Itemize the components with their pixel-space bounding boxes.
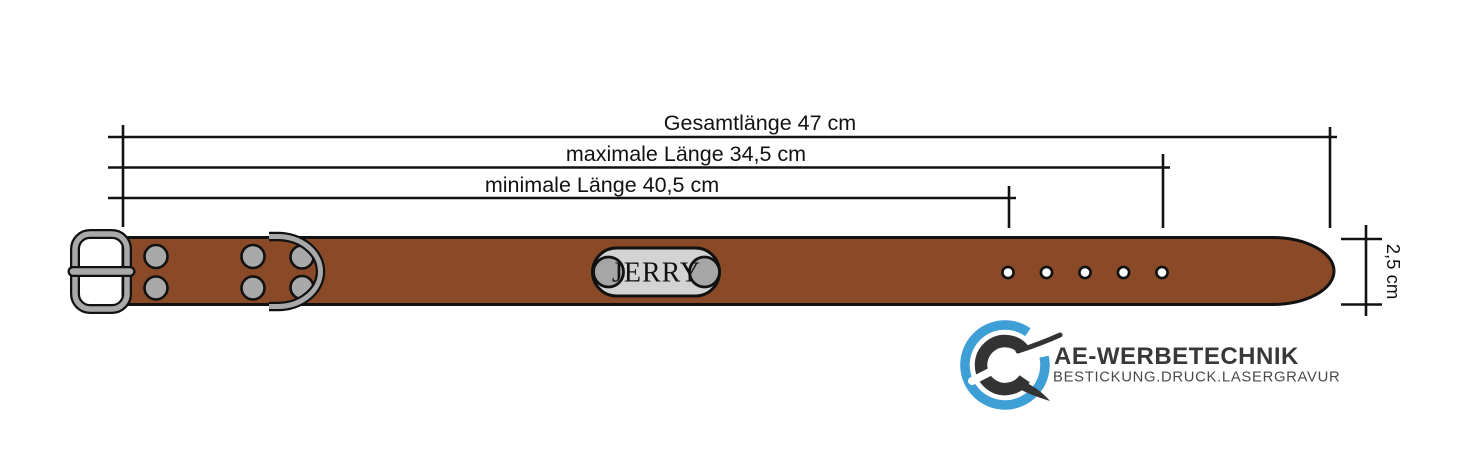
rivet xyxy=(242,277,265,300)
name-plate-text: JERRY xyxy=(612,258,701,289)
name-plate: JERRY xyxy=(593,248,720,296)
dimension-label-max: maximale Länge 34,5 cm xyxy=(566,142,806,166)
logo-swirl-icon xyxy=(965,325,1060,405)
collar-dimension-diagram: Gesamtlänge 47 cm maximale Länge 34,5 cm… xyxy=(0,0,1460,451)
diagram-svg: Gesamtlänge 47 cm maximale Länge 34,5 cm… xyxy=(0,0,1460,451)
collar-hole xyxy=(1041,267,1052,278)
rivet xyxy=(145,277,168,300)
dimension-label-total: Gesamtlänge 47 cm xyxy=(664,111,856,135)
collar-hole xyxy=(1118,267,1129,278)
dimension-label-min: minimale Länge 40,5 cm xyxy=(485,173,719,197)
collar-hole xyxy=(1079,267,1090,278)
brand-tagline: BESTICKUNG.DRUCK.LASERGRAVUR xyxy=(1053,370,1340,386)
collar-hole xyxy=(1156,267,1167,278)
brand-name: AE-WERBETECHNIK xyxy=(1054,343,1299,370)
rivet xyxy=(145,245,168,268)
rivet xyxy=(242,245,265,268)
dimension-lines xyxy=(108,125,1337,228)
collar-hole xyxy=(1002,267,1013,278)
width-dimension: 2,5 cm xyxy=(1341,225,1404,316)
buckle xyxy=(73,234,130,309)
brand-logo: AE-WERBETECHNIK BESTICKUNG.DRUCK.LASERGR… xyxy=(965,325,1340,405)
width-dimension-label: 2,5 cm xyxy=(1383,244,1404,300)
